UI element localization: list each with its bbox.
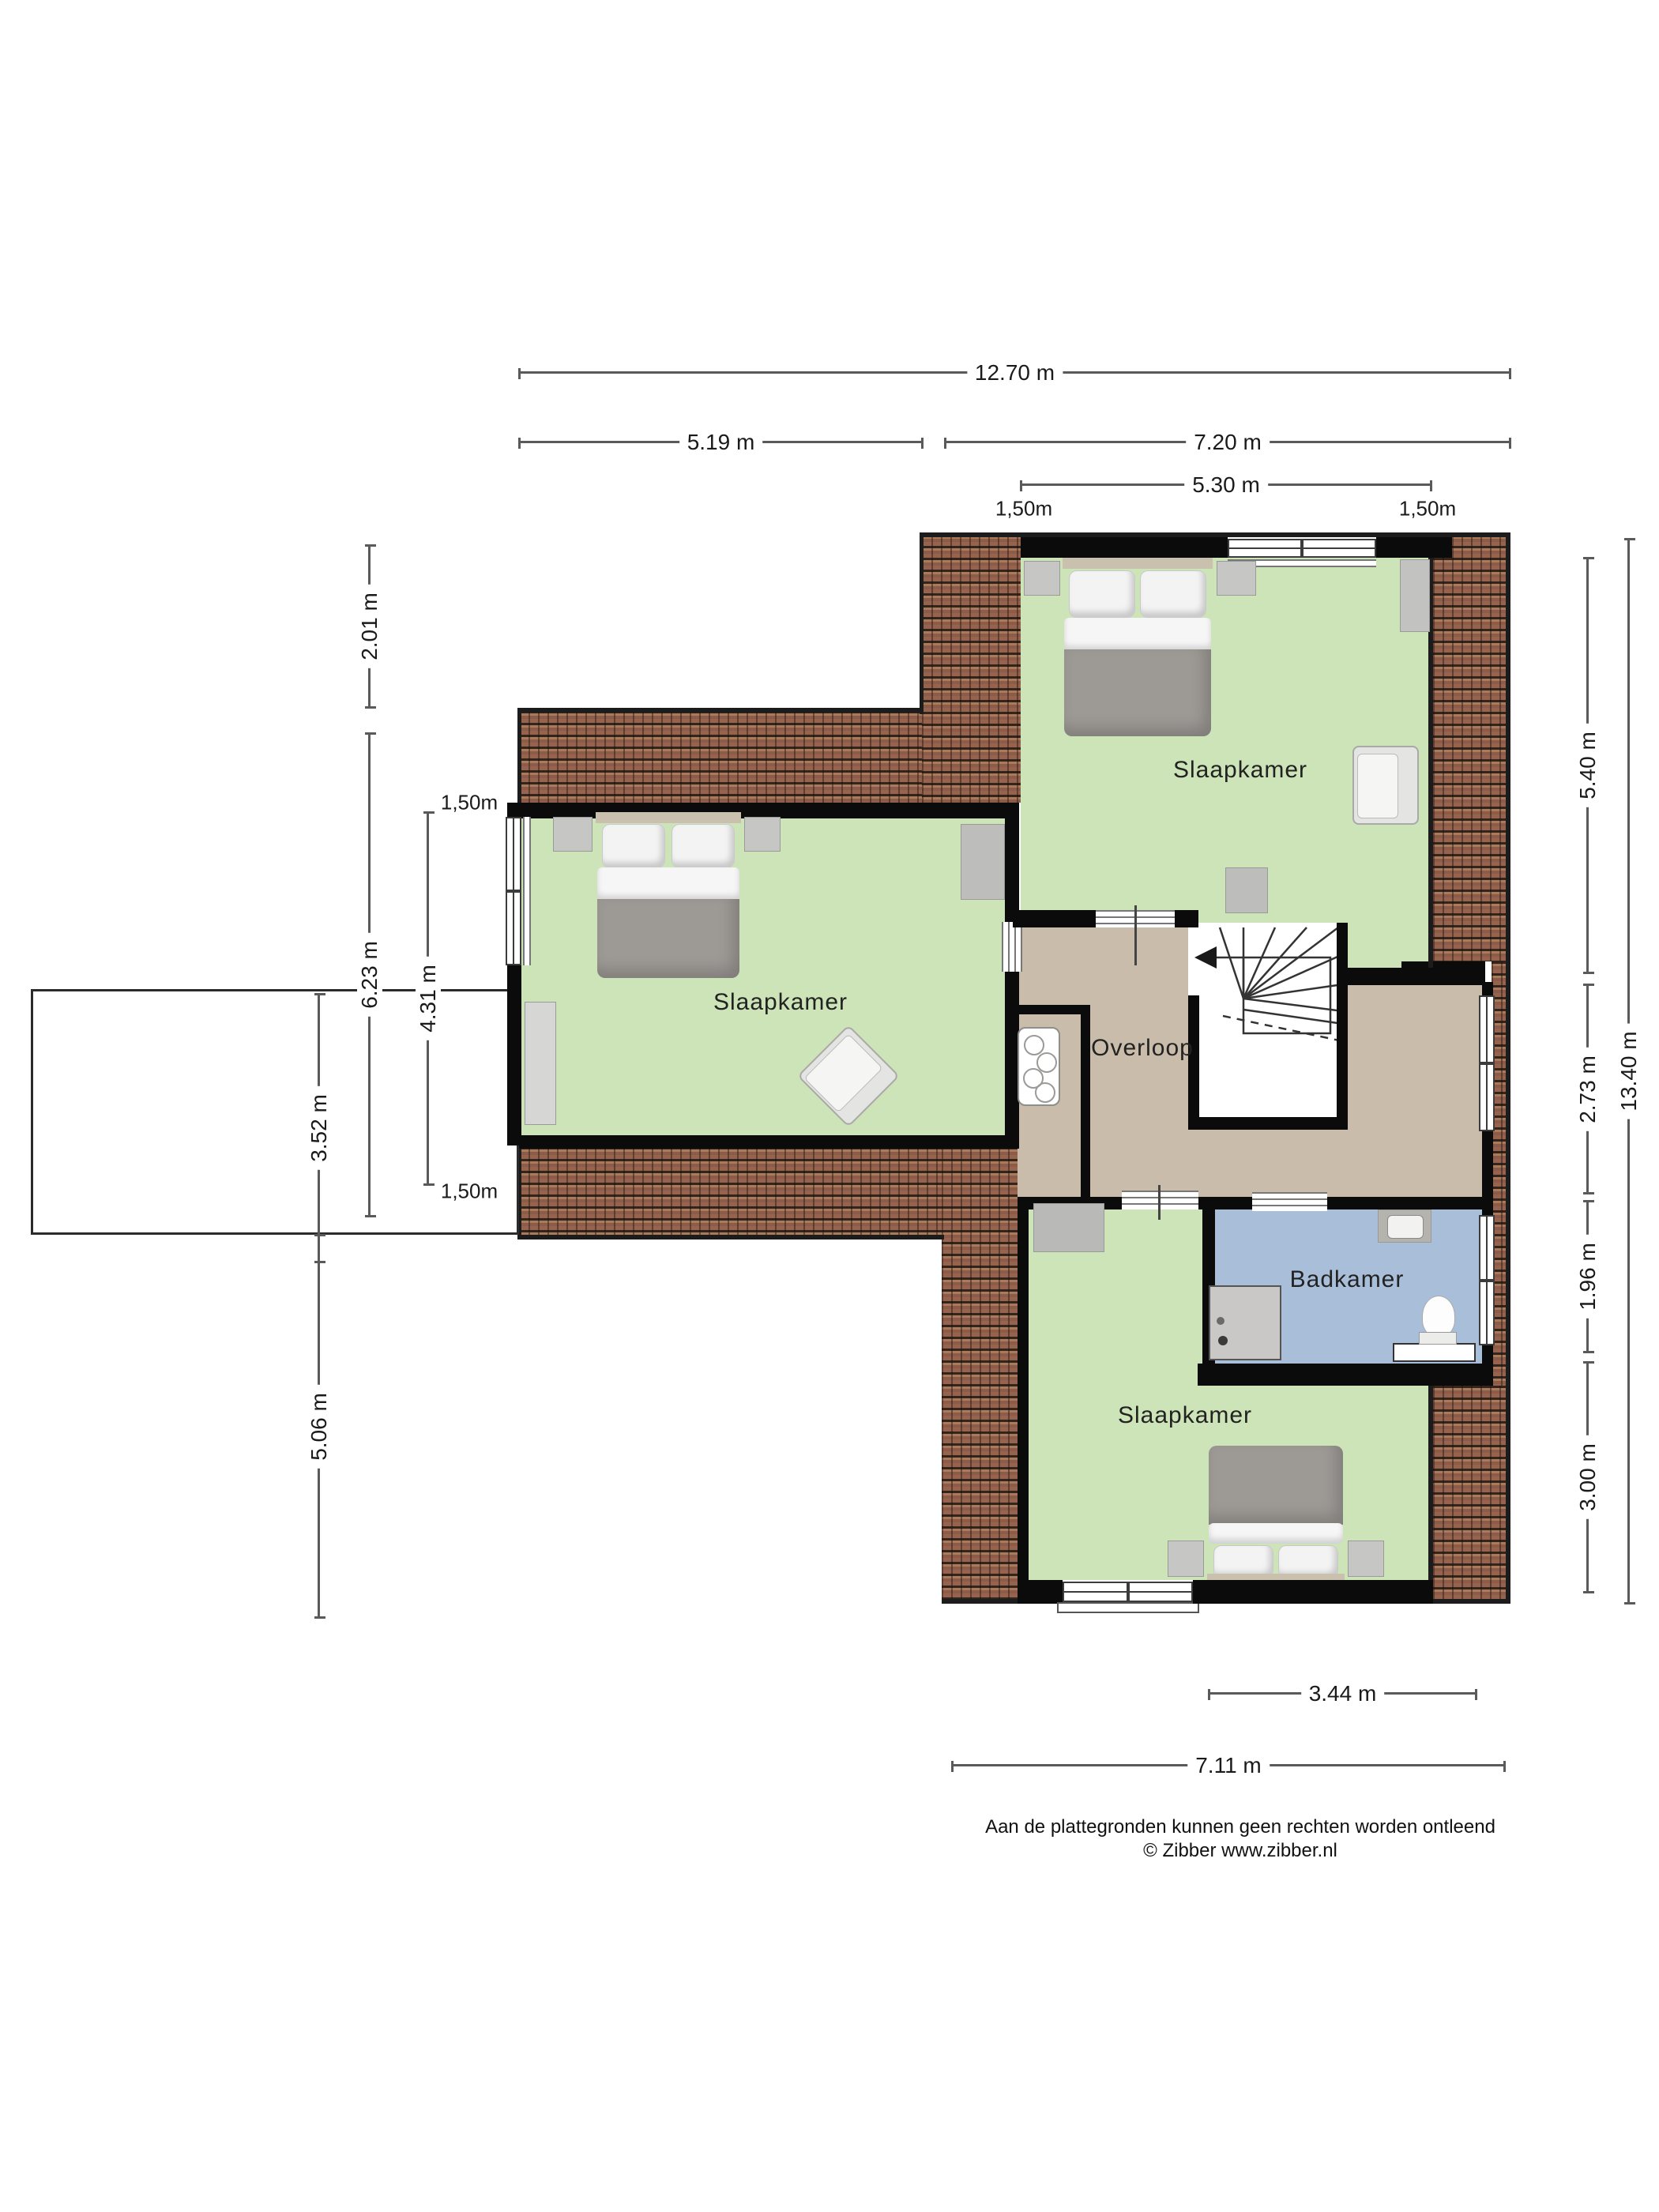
dim-left-room-inner: 4.31 m — [427, 812, 429, 1185]
bed-pillow — [671, 824, 735, 868]
wall-bathroom-bottom — [1198, 1364, 1488, 1386]
roof-edge-bottom-left — [942, 1599, 1018, 1604]
dresser-left-bedroom — [525, 1002, 556, 1125]
nightstand — [553, 817, 592, 852]
stairs-up-arrow-icon — [1194, 946, 1217, 969]
roof-edge-wing-top — [517, 708, 924, 713]
dim-top-window-wall: 5.30 m — [1021, 483, 1431, 486]
wardrobe-left-bedroom — [961, 824, 1005, 900]
roof-top-left-column — [922, 534, 1021, 803]
dim-left-annex: 3.52 m — [318, 994, 320, 1262]
roof-right-strip-lower — [1433, 1386, 1507, 1604]
window-top-bedroom — [1228, 539, 1376, 558]
dim-top-offset-right: 1,50m — [1399, 497, 1456, 521]
wall-bottom-b — [1193, 1580, 1433, 1604]
wall-stair-bottom — [1188, 1117, 1346, 1130]
roof-edge-wing-bottom — [517, 1235, 944, 1240]
roof-edge-left-column — [920, 532, 924, 714]
wall-bathroom-top-b — [1327, 1197, 1485, 1209]
dim-left-offset-bottom: 1,50m — [441, 1179, 498, 1204]
wall-leftwing-left-a — [507, 803, 521, 817]
bed-duvet — [1064, 649, 1211, 736]
armchair-cushion — [1357, 754, 1398, 818]
nightstand — [744, 817, 781, 852]
shower-drain-icon — [1218, 1336, 1228, 1345]
cabinet-top-bedroom — [1225, 867, 1268, 913]
nightstand — [1217, 561, 1256, 596]
bed-headboard — [596, 812, 741, 823]
bed-fold — [1064, 618, 1211, 651]
bed-fold — [597, 867, 739, 901]
wall-landing-right-top — [1482, 982, 1493, 995]
wall-chunk-top-right — [1401, 961, 1485, 985]
wall-landing-divider-h — [1018, 1005, 1090, 1014]
roof-edge-wing-left — [517, 708, 521, 806]
window-landing-right — [1479, 995, 1495, 1131]
wall-stair-left — [1188, 995, 1199, 1128]
bed-pillow — [602, 824, 665, 868]
dim-left-lower: 5.06 m — [318, 1235, 320, 1618]
door-bathroom — [1252, 1192, 1327, 1211]
wardrobe-top-bedroom — [1400, 559, 1430, 632]
bathroom-toilet-bowl — [1422, 1296, 1455, 1337]
roof-left-wing-bottom — [519, 1147, 942, 1235]
wall-bathroom-right-top — [1482, 1197, 1493, 1215]
dim-left-upper: 2.01 m — [368, 545, 371, 708]
bed-duvet — [1209, 1446, 1343, 1525]
footer-disclaimer: Aan de plattegronden kunnen geen rechten… — [774, 1815, 1659, 1863]
bed-left-bedroom — [596, 812, 741, 983]
wall-leftwing-bottom — [519, 1135, 1019, 1149]
bathroom-toilet-tank — [1419, 1332, 1457, 1345]
wall-bottom-room-left — [1018, 1197, 1029, 1604]
roof-right-strip-upper — [1433, 534, 1507, 961]
stairs-icon — [1188, 923, 1346, 1128]
shelf-item-icon — [1024, 1035, 1044, 1055]
dim-top-offset-left: 1,50m — [995, 497, 1052, 521]
bed-pillow — [1140, 570, 1206, 618]
dim-left-offset-top: 1,50m — [441, 791, 498, 815]
door-top-bedroom-pivot — [1134, 905, 1137, 965]
window-left-bedroom — [506, 817, 521, 965]
wall-bathroom-top-a — [1212, 1197, 1252, 1209]
window-left-sill — [523, 817, 531, 965]
wall-landing-divider-v — [1081, 1014, 1090, 1197]
bed-headboard — [1063, 558, 1213, 569]
floorplan-page: { "rooms": { "bedroom_top": { "label": "… — [0, 0, 1659, 2212]
nightstand — [1168, 1540, 1204, 1577]
dim-top-total: 12.70 m — [519, 371, 1510, 374]
wall-top-b — [1376, 537, 1452, 558]
room-landing-c — [1346, 985, 1482, 1128]
dim-left-wing-height: 6.23 m — [368, 733, 371, 1217]
wall-top-a — [1021, 537, 1228, 558]
wall-corridor-a — [1013, 910, 1096, 927]
wall-corridor-b — [1175, 910, 1198, 927]
dim-bottom-inner: 3.44 m — [1209, 1692, 1477, 1695]
room-landing-b — [1198, 1128, 1482, 1197]
wardrobe-bottom-bedroom — [1033, 1203, 1104, 1252]
dim-bottom-total: 7.11 m — [952, 1764, 1505, 1766]
dim-right-bedroom: 5.40 m — [1586, 558, 1589, 973]
footer-line1: Aan de plattegronden kunnen geen rechten… — [774, 1815, 1659, 1839]
bed-top-bedroom — [1063, 558, 1213, 743]
roof-bottom-left-column — [942, 1147, 1018, 1604]
wall-leftwing-top — [519, 803, 1019, 818]
room-label-bedroom-left: Slaapkamer — [713, 989, 848, 1016]
wall-landing-right-bottom — [1482, 1131, 1493, 1204]
wall-stair-right — [1337, 923, 1348, 1130]
nightstand — [1348, 1540, 1384, 1577]
dim-top-left-wing: 5.19 m — [519, 441, 923, 443]
bed-duvet — [597, 899, 739, 978]
wall-bottom-a — [1018, 1580, 1063, 1604]
window-bathroom-right — [1479, 1215, 1495, 1345]
bed-headboard — [1207, 1574, 1345, 1580]
dim-right-landing: 2.73 m — [1586, 984, 1589, 1194]
bed-bottom-bedroom — [1207, 1446, 1345, 1580]
dim-right-bathroom: 1.96 m — [1586, 1201, 1589, 1352]
door-left-bedroom — [1002, 922, 1022, 972]
room-label-landing: Overloop — [1091, 1035, 1194, 1062]
wall-leftwing-left-b — [507, 965, 521, 1145]
room-label-bedroom-bottom: Slaapkamer — [1118, 1402, 1252, 1429]
bathroom-sink-basin — [1387, 1215, 1424, 1239]
nightstand — [1024, 561, 1060, 596]
bathroom-shelf — [1393, 1343, 1476, 1362]
roof-left-wing-top — [519, 711, 922, 803]
armchair-top-bedroom — [1352, 746, 1419, 825]
shelf-landing — [1018, 1027, 1060, 1106]
wall-left-room-right-a — [1005, 803, 1019, 922]
floor-plan: Slaapkamer Slaapkamer Overloop Badkamer — [0, 0, 1659, 2212]
door-bottom-bedroom-pivot — [1158, 1185, 1161, 1220]
room-bedroom-left — [521, 818, 1005, 1135]
room-label-bedroom-top: Slaapkamer — [1173, 757, 1307, 784]
bed-fold — [1209, 1523, 1343, 1544]
dim-top-right-wing: 7.20 m — [945, 441, 1510, 443]
dim-right-bedroom-bottom: 3.00 m — [1586, 1362, 1589, 1593]
footer-line2: © Zibber www.zibber.nl — [774, 1839, 1659, 1863]
roof-edge-bottom-right — [1433, 1599, 1510, 1604]
wall-green-roof-bottom — [1428, 1386, 1433, 1580]
shower-head-icon — [1217, 1317, 1224, 1325]
window-bottom-bedroom — [1063, 1582, 1193, 1602]
room-label-bathroom: Badkamer — [1290, 1266, 1405, 1293]
shelf-item-icon — [1035, 1082, 1055, 1103]
bed-pillow — [1069, 570, 1135, 618]
bathroom-shower — [1209, 1285, 1281, 1360]
window-bottom-sill — [1057, 1602, 1199, 1613]
roof-edge-right — [1506, 532, 1510, 1604]
room-bedroom-bottom-a — [1029, 1209, 1202, 1580]
stairwell — [1188, 923, 1346, 1128]
dim-right-total: 13.40 m — [1627, 539, 1630, 1604]
